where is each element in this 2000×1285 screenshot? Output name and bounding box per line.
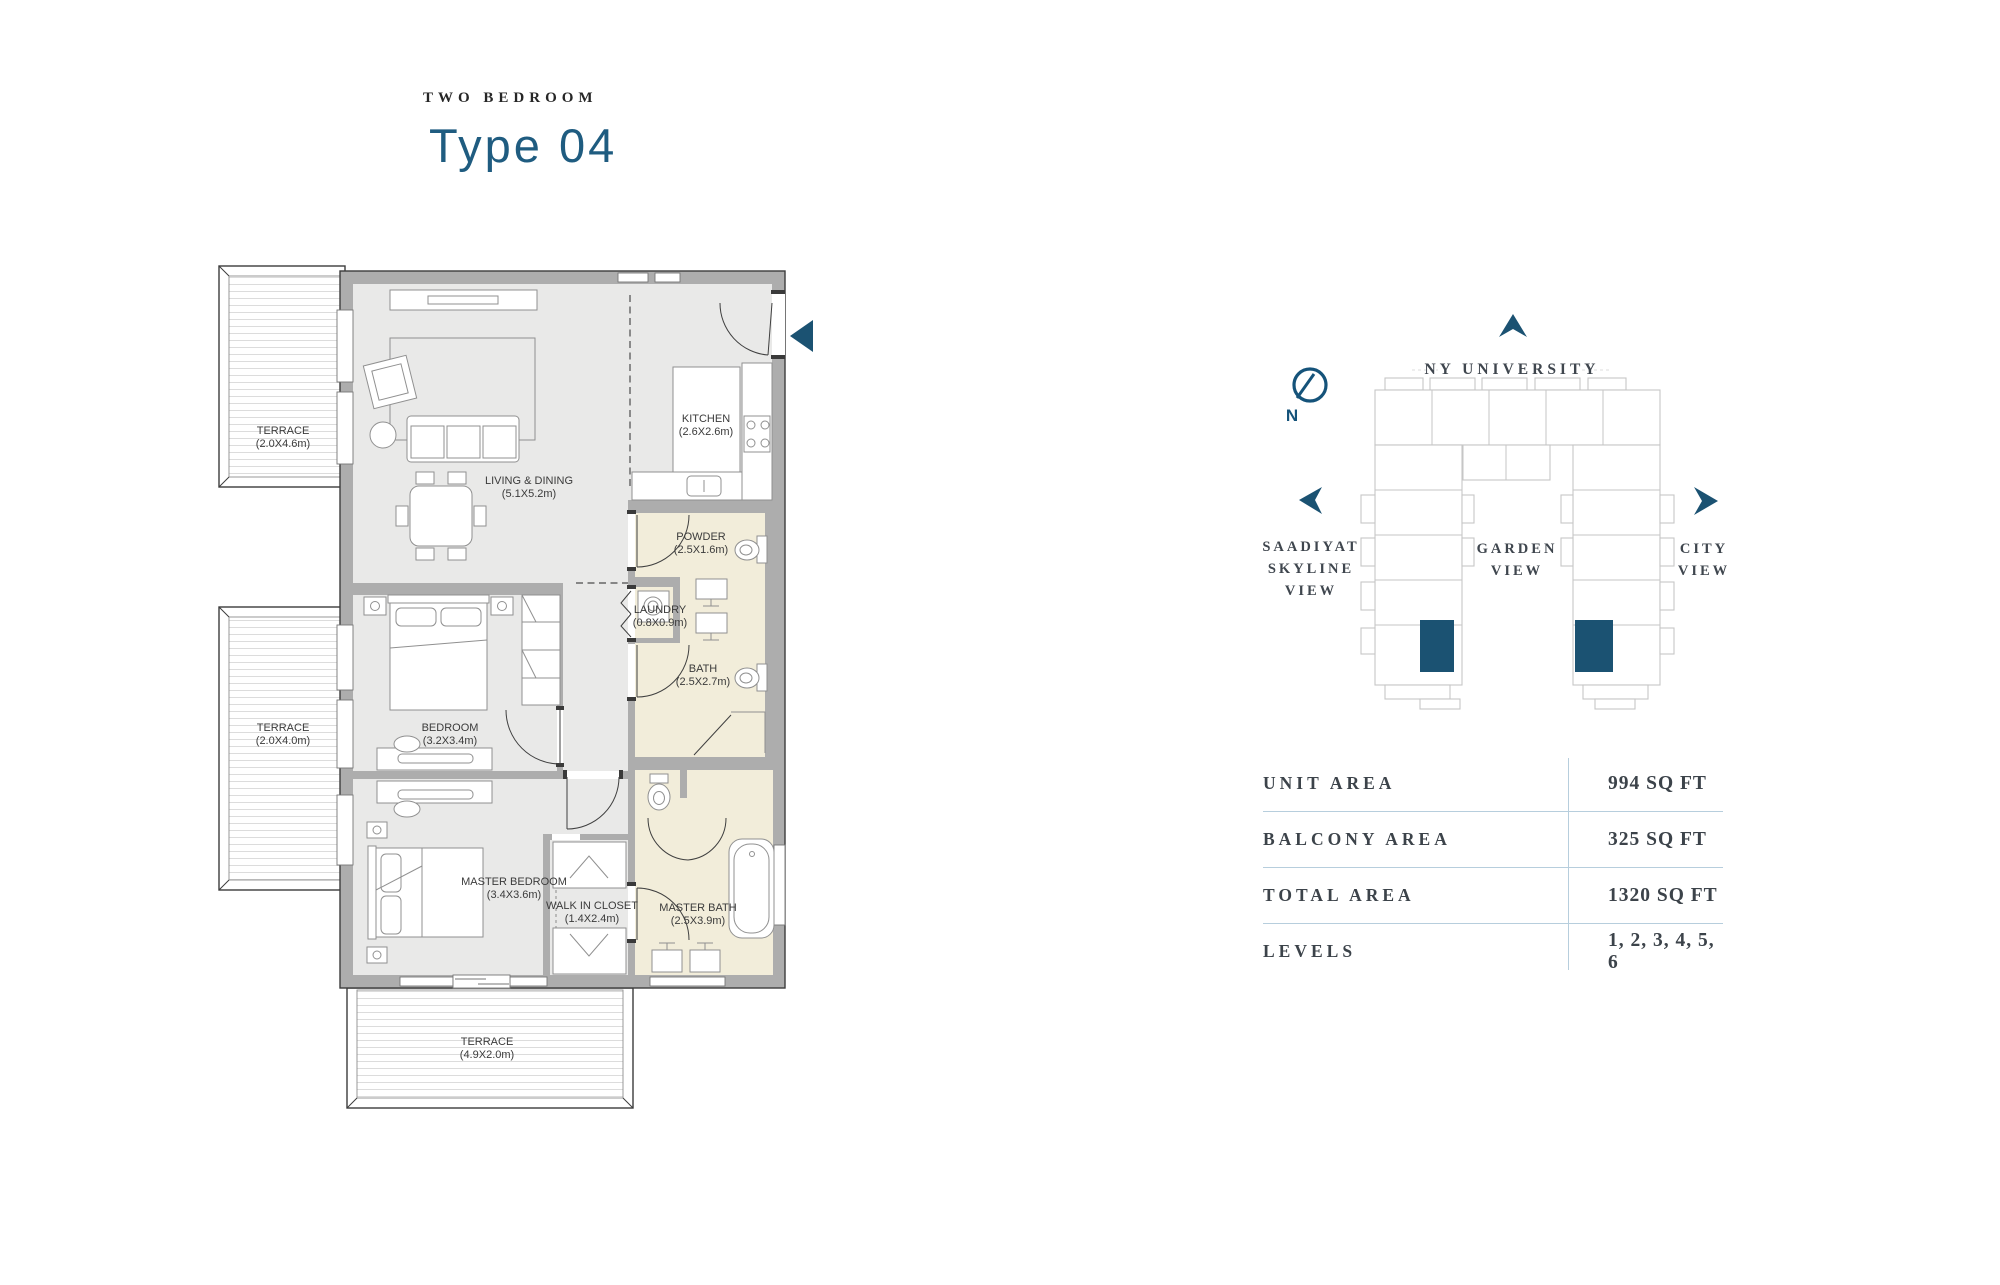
site-diagram: N NY UNIVERSITY SAADIYAT SKYLINE VIEW GA… [1180,290,1740,780]
sofa-symbol [407,416,519,462]
west-arrow-icon [1299,487,1322,514]
master-bed-symbol [368,846,483,939]
room-dims: (2.5X3.9m) [671,915,725,927]
room-dims: (2.5X1.6m) [674,544,728,556]
row-label: LEVELS [1263,941,1568,962]
room-label: MASTER BATH [659,902,736,914]
north-arrow-icon [1499,314,1527,337]
svg-text:VIEW: VIEW [1491,563,1543,579]
row-value: 1, 2, 3, 4, 5, 6 [1568,930,1723,974]
room-label: BEDROOM [422,722,479,734]
room-label: LIVING & DINING [485,475,573,487]
highlighted-unit-left [1420,620,1454,672]
room-label: WALK IN CLOSET [546,900,638,912]
room-label: TERRACE [257,722,310,734]
room-dims: (0.8X0.9m) [633,617,687,629]
table-row: TOTAL AREA 1320 SQ FT [1263,868,1723,924]
room-bath [635,643,765,757]
floor-plan: TERRACE (2.0X4.6m) TERRACE (2.0X4.0m) TE… [170,250,830,1130]
bathtub-symbol [729,839,774,938]
hallway [563,583,628,771]
table-row: LEVELS 1, 2, 3, 4, 5, 6 [1263,924,1723,979]
room-dims: (3.2X3.4m) [423,735,477,747]
table-row: UNIT AREA 994 SQ FT [1263,756,1723,812]
room-dims: (4.9X2.0m) [460,1049,514,1061]
room-dims: (2.5X2.7m) [676,676,730,688]
room-label: TERRACE [257,425,310,437]
compass-n-label: N [1286,406,1298,425]
entrance-arrow-icon [790,320,813,352]
room-label: MASTER BEDROOM [461,876,567,888]
view-label-saadiyat: SAADIYAT SKYLINE VIEW [1262,539,1359,599]
toilet-symbol [648,774,670,810]
tv-console-symbol [390,290,537,310]
room-dims: (2.6X2.6m) [679,426,733,438]
svg-text:SAADIYAT: SAADIYAT [1262,539,1359,555]
svg-text:GARDEN: GARDEN [1477,541,1558,557]
compass-icon: N [1286,369,1326,425]
bed-symbol [388,595,489,710]
row-label: UNIT AREA [1263,773,1568,794]
room-label: TERRACE [461,1036,514,1048]
page: TWO BEDROOM Type 04 TERRACE (2.0X4.6m) T… [0,0,2000,1285]
row-label: TOTAL AREA [1263,885,1568,906]
room-dims: (2.0X4.0m) [256,735,310,747]
room-terrace-3: TERRACE (4.9X2.0m) [347,988,633,1108]
view-label-garden: GARDEN VIEW [1477,541,1558,579]
wardrobe-symbol [522,595,560,705]
room-label: LAUNDRY [634,604,687,616]
highlighted-unit-right [1575,620,1613,672]
svg-text:SKYLINE: SKYLINE [1268,561,1354,577]
room-dims: (2.0X4.6m) [256,438,310,450]
room-terrace-1: TERRACE (2.0X4.6m) [219,266,345,487]
landmark-label: NY UNIVERSITY [1424,361,1599,378]
room-dims: (1.4X2.4m) [565,913,619,925]
room-terrace-2: TERRACE (2.0X4.0m) [219,607,345,890]
side-table-symbol [370,422,396,448]
view-label-city: CITY VIEW [1678,541,1730,579]
room-label: BATH [689,663,718,675]
east-arrow-icon [1694,487,1718,515]
room-dims: (3.4X3.6m) [487,889,541,901]
row-value: 325 SQ FT [1568,829,1707,851]
table-row: BALCONY AREA 325 SQ FT [1263,812,1723,868]
room-label: KITCHEN [682,413,730,425]
room-dims: (5.1X5.2m) [502,488,556,500]
details-table: UNIT AREA 994 SQ FT BALCONY AREA 325 SQ … [1263,756,1723,976]
svg-text:CITY: CITY [1680,541,1728,557]
svg-text:VIEW: VIEW [1678,563,1730,579]
svg-text:VIEW: VIEW [1285,583,1337,599]
row-value: 994 SQ FT [1568,773,1707,795]
room-label: POWDER [676,531,726,543]
row-label: BALCONY AREA [1263,829,1568,850]
page-title: Type 04 [429,118,617,173]
row-value: 1320 SQ FT [1568,885,1718,907]
category-label: TWO BEDROOM [423,90,598,107]
